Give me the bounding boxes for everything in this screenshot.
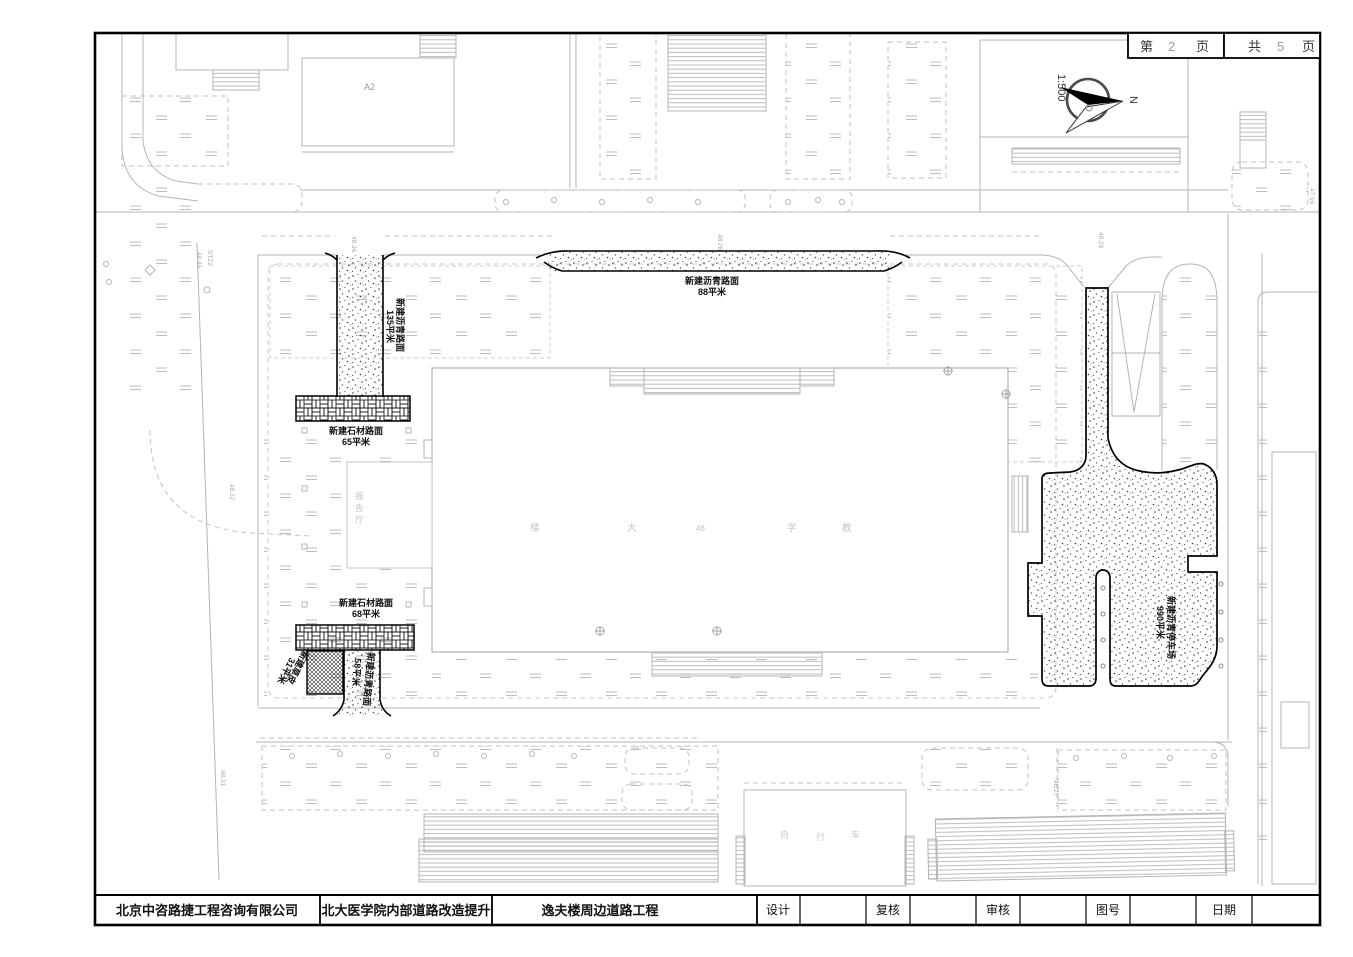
page-label: 页	[1196, 39, 1209, 54]
survey-point-marker	[204, 287, 210, 293]
green-area	[600, 33, 656, 179]
pavement-label: 新建沥青路面	[685, 275, 739, 286]
existing-building-a2	[302, 58, 454, 146]
existing-building-east	[1272, 452, 1316, 884]
stair-hatch	[1012, 148, 1180, 164]
grand-stair-hatch	[668, 33, 766, 111]
south-building-char: 行	[816, 831, 825, 842]
hall-char: 报	[355, 491, 364, 501]
green-area	[270, 266, 550, 358]
stair-hatch	[420, 33, 456, 58]
green-area	[1232, 162, 1308, 210]
pavement-label: 990平米	[1155, 606, 1166, 640]
company-name: 北京中咨路捷工程咨询有限公司	[116, 903, 298, 918]
building-notch	[424, 588, 432, 606]
tree-circles	[504, 198, 701, 205]
spot-elevation: 48.32	[228, 484, 235, 501]
pavement-label: 新建石材路面	[329, 425, 383, 436]
green-island	[622, 784, 692, 810]
main-building: 楼 大 48 学 教 报 告 厅	[347, 366, 1028, 676]
page-number: 2	[1168, 39, 1175, 54]
spot-elevation: 47.99	[1308, 188, 1315, 205]
pavement-label: 68平米	[352, 608, 381, 619]
south-building-char: 自	[780, 829, 789, 840]
title-block: 北京中咨路捷工程咨询有限公司 北大医学院内部道路改造提升 逸夫楼周边道路工程 设…	[95, 895, 1320, 925]
stair-hatch	[1012, 476, 1028, 532]
scale-label: 1:500	[1055, 74, 1067, 102]
spot-elevation: 48.31	[219, 770, 226, 787]
stair-hatch	[800, 368, 834, 386]
new-asphalt-north-strip: 新建沥青路面 88平米	[536, 251, 910, 297]
spot-elevation: 48.27	[1052, 780, 1059, 797]
curb-island	[495, 190, 745, 212]
stair-hatch	[610, 368, 644, 386]
green-island	[625, 748, 689, 774]
main-building-outline	[432, 368, 1008, 652]
main-building-char: 教	[842, 522, 852, 534]
total-label: 页	[1302, 39, 1315, 54]
bike-shed	[419, 839, 718, 882]
green-area	[888, 42, 946, 178]
pavement-label: 88平米	[698, 286, 727, 297]
main-building-char: 楼	[530, 522, 540, 534]
road-end-island	[198, 184, 302, 212]
green-island-dome	[1162, 264, 1217, 470]
spot-elevation: 48.36	[350, 236, 357, 253]
stair-hatch	[736, 836, 745, 884]
survey-point-elev: 48.45	[195, 252, 202, 269]
north-label: N	[1127, 96, 1139, 104]
existing-building	[176, 33, 288, 70]
field-audit: 审核	[986, 902, 1010, 917]
stair-hatch	[213, 70, 259, 90]
pavement-label: 新建沥青停车场	[1166, 596, 1177, 659]
pavement-label: 新建石材路面	[339, 597, 393, 608]
green-area	[1058, 750, 1226, 810]
hall-char: 厅	[355, 515, 364, 525]
spot-elevation: 48.28	[716, 234, 723, 251]
pavement-label: 新建沥青路面	[395, 298, 406, 352]
cad-drawing-sheet: 楼 大 48 学 教 报 告 厅 自 行 车	[0, 0, 1353, 957]
green-island	[922, 748, 1028, 790]
green-area	[786, 33, 850, 179]
south-building-char: 车	[851, 829, 860, 840]
spot-elevation: 48.26	[1097, 232, 1104, 249]
project-name: 北大医学院内部道路改造提升	[321, 903, 490, 918]
green-area	[122, 96, 228, 166]
main-building-char: 学	[787, 522, 797, 534]
site-plan-canvas: 楼 大 48 学 教 报 告 厅 自 行 车	[0, 0, 1353, 957]
stair-hatch	[1240, 112, 1266, 140]
field-check: 复核	[876, 903, 900, 917]
west-road	[197, 243, 219, 880]
south-site-area: 自 行 车	[256, 738, 1235, 886]
building-label-a2: A2	[364, 82, 375, 92]
survey-point-id: STZ2	[206, 250, 213, 266]
field-date: 日期	[1212, 903, 1236, 917]
hall-char: 告	[355, 503, 364, 513]
bike-shed-east	[927, 813, 1234, 881]
field-drawing-no: 图号	[1096, 903, 1120, 917]
pavement-label: 65平米	[342, 436, 371, 447]
drawing-title: 逸夫楼周边道路工程	[541, 903, 658, 918]
entrance-stair-hatch	[644, 368, 800, 394]
building-notch	[424, 440, 432, 458]
total-number: 5	[1277, 39, 1284, 54]
page-label: 第	[1140, 39, 1153, 54]
total-label: 共	[1248, 39, 1261, 54]
pavement-label: 135平米	[385, 310, 396, 344]
road-edge	[197, 243, 219, 880]
stair-hatch	[905, 836, 914, 884]
green-area	[124, 180, 200, 400]
field-design: 设计	[766, 903, 790, 917]
main-building-char: 大	[627, 522, 637, 534]
main-building-char: 48	[696, 524, 705, 533]
green-area	[1259, 300, 1271, 860]
entrance-stair-hatch	[652, 652, 822, 676]
tree-circles	[786, 198, 845, 205]
page-header: 第 2 页 共 5 页	[1128, 33, 1320, 58]
north-arrow: N 1:500	[1055, 74, 1139, 133]
